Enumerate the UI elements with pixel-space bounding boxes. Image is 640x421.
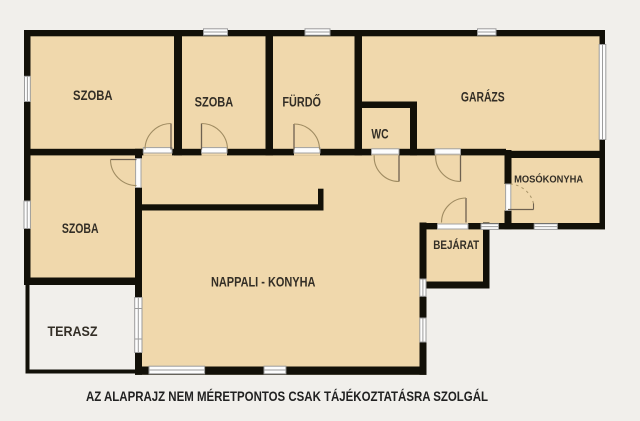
svg-text:FÜRDŐ: FÜRDŐ: [282, 94, 321, 109]
svg-text:TERASZ: TERASZ: [48, 324, 98, 339]
svg-text:SZOBA: SZOBA: [73, 88, 113, 103]
svg-text:MOSÓKONYHA: MOSÓKONYHA: [514, 173, 584, 186]
svg-text:AZ ALAPRAJZ NEM MÉRETPONTOS CS: AZ ALAPRAJZ NEM MÉRETPONTOS CSAK TÁJÉKOZ…: [86, 388, 488, 404]
svg-text:SZOBA: SZOBA: [62, 221, 99, 236]
svg-text:SZOBA: SZOBA: [195, 94, 234, 109]
svg-text:WC: WC: [371, 126, 388, 142]
svg-text:NAPPALI - KONYHA: NAPPALI - KONYHA: [211, 275, 316, 290]
svg-text:BEJÁRAT: BEJÁRAT: [433, 239, 479, 252]
svg-text:GARÁZS: GARÁZS: [461, 90, 505, 105]
